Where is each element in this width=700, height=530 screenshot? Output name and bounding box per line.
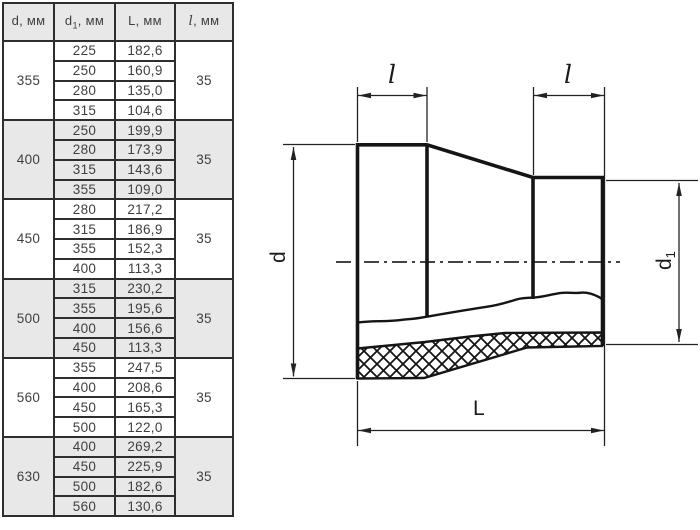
cell-d: 500 (3, 279, 54, 358)
cell-L: 113,3 (115, 259, 175, 279)
cell-L: 135,0 (115, 81, 175, 101)
arrowhead (291, 364, 297, 377)
dim-label-l-right: l (564, 60, 572, 89)
arrowhead (414, 93, 427, 99)
cell-d1: 355 (54, 239, 115, 259)
cell-d1: 315 (54, 279, 115, 299)
cell-L: 160,9 (115, 61, 175, 81)
break-line (358, 293, 603, 323)
arrowhead (358, 93, 371, 99)
col-header-d1: d1, мм (54, 3, 115, 41)
cell-d1: 280 (54, 140, 115, 160)
cell-L: 199,9 (115, 120, 175, 140)
cell-d1: 315 (54, 160, 115, 180)
cell-d: 355 (3, 41, 54, 120)
crosshatch-section (358, 333, 603, 379)
cell-l: 35 (175, 41, 233, 120)
cell-l: 35 (175, 120, 233, 199)
cell-l: 35 (175, 437, 233, 516)
cell-d1: 355 (54, 298, 115, 318)
col-header-d: d, мм (3, 3, 54, 41)
cell-L: 156,6 (115, 318, 175, 338)
cell-d1: 400 (54, 437, 115, 457)
cell-d1: 280 (54, 81, 115, 101)
cell-d1: 280 (54, 199, 115, 219)
cell-d1: 400 (54, 259, 115, 279)
cell-L: 152,3 (115, 239, 175, 259)
dim-label-l-left: l (388, 60, 396, 89)
dimension-l-left: l (358, 60, 427, 98)
cell-L: 182,6 (115, 477, 175, 497)
cell-l: 35 (175, 279, 233, 358)
reducer-drawing-svg: l l d d1 L (240, 0, 700, 525)
cell-L: 182,6 (115, 41, 175, 61)
cell-l: 35 (175, 358, 233, 437)
cell-L: 130,6 (115, 496, 175, 516)
arrowhead (676, 329, 682, 342)
arrowhead (591, 93, 604, 99)
cell-L: 143,6 (115, 160, 175, 180)
table-row: 630400269,235 (3, 437, 233, 457)
cell-L: 230,2 (115, 279, 175, 299)
table-row: 500315230,235 (3, 279, 233, 299)
dim-label-L: L (473, 397, 485, 420)
dimension-d1: d1 (653, 183, 682, 342)
cell-L: 247,5 (115, 358, 175, 378)
arrowhead (534, 93, 547, 99)
cell-L: 109,0 (115, 180, 175, 200)
cell-L: 269,2 (115, 437, 175, 457)
cell-d: 450 (3, 199, 54, 278)
table-row: 560355247,535 (3, 358, 233, 378)
cell-L: 208,6 (115, 378, 175, 398)
cell-l: 35 (175, 199, 233, 278)
dim-label-d1: d1 (653, 251, 678, 270)
arrowhead (358, 428, 371, 434)
cell-L: 195,6 (115, 298, 175, 318)
cell-d1: 400 (54, 378, 115, 398)
dimension-L: L (358, 397, 604, 433)
arrowhead (591, 428, 604, 434)
table-row: 400250199,935 (3, 120, 233, 140)
cell-L: 165,3 (115, 397, 175, 417)
cell-L: 186,9 (115, 219, 175, 239)
cell-L: 104,6 (115, 100, 175, 120)
col-header-L: L, мм (115, 3, 175, 41)
cell-d1: 400 (54, 318, 115, 338)
cell-d1: 560 (54, 496, 115, 516)
dim-label-d: d (267, 251, 290, 263)
cell-L: 173,9 (115, 140, 175, 160)
table-row: 355225182,635 (3, 41, 233, 61)
dimension-l-right: l (534, 60, 604, 98)
cell-d: 560 (3, 358, 54, 437)
cell-d1: 225 (54, 41, 115, 61)
cell-d: 630 (3, 437, 54, 516)
cell-d1: 315 (54, 100, 115, 120)
cell-L: 225,9 (115, 457, 175, 477)
table-header-row: d, мм d1, мм L, мм l, мм (3, 3, 233, 41)
cell-d1: 500 (54, 417, 115, 437)
arrowhead (291, 147, 297, 160)
arrowhead (676, 183, 682, 196)
col-header-l: l, мм (175, 3, 233, 41)
cell-d: 400 (3, 120, 54, 199)
dimension-d: d (267, 147, 296, 377)
table-row: 450280217,235 (3, 199, 233, 219)
cell-d1: 500 (54, 477, 115, 497)
cell-d1: 355 (54, 358, 115, 378)
dimensions-table: d, мм d1, мм L, мм l, мм 355225182,63525… (2, 2, 234, 517)
cell-d1: 450 (54, 397, 115, 417)
cell-L: 113,3 (115, 338, 175, 358)
cell-L: 122,0 (115, 417, 175, 437)
cell-L: 217,2 (115, 199, 175, 219)
cell-d1: 250 (54, 61, 115, 81)
cell-d1: 250 (54, 120, 115, 140)
cell-d1: 450 (54, 457, 115, 477)
cell-d1: 355 (54, 180, 115, 200)
extension-lines (283, 87, 698, 446)
cell-d1: 450 (54, 338, 115, 358)
cell-d1: 315 (54, 219, 115, 239)
reducer-diagram: l l d d1 L (240, 0, 700, 525)
